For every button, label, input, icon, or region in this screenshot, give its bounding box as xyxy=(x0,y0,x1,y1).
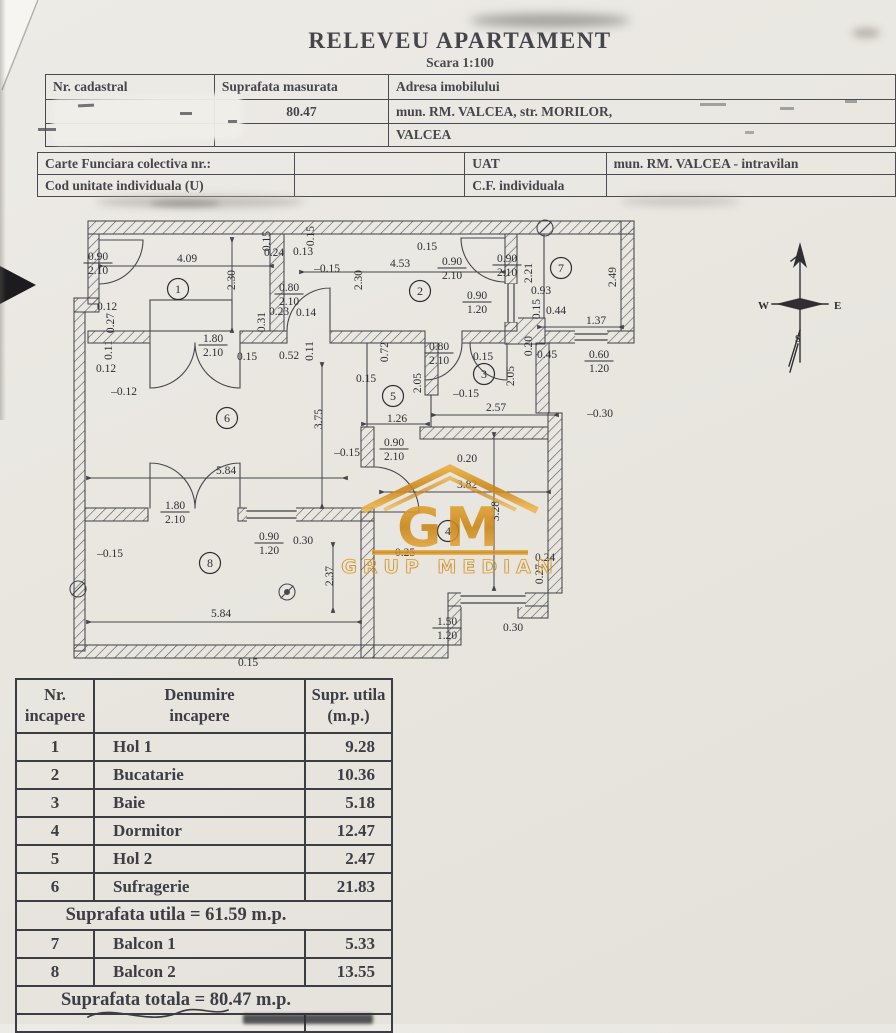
room-number: 3 xyxy=(474,364,495,385)
dimension-label: 2.21 xyxy=(523,263,535,283)
table-row: 80.47 mun. RM. VALCEA, str. MORILOR, xyxy=(46,100,896,124)
dimension-label: 2.05 xyxy=(505,366,517,386)
svg-text:0.12: 0.12 xyxy=(97,301,117,313)
dimension-label: 0.13 xyxy=(293,246,313,258)
adresa-value-line2: VALCEA xyxy=(388,124,895,147)
svg-text:–0.15: –0.15 xyxy=(333,447,360,459)
svg-text:0.15: 0.15 xyxy=(356,373,376,385)
table-row: Nr. cadastral Suprafata masurata Adresa … xyxy=(46,75,896,100)
dimension-label: 0.15 xyxy=(417,241,437,253)
dimension-label: –0.15 xyxy=(313,263,340,275)
svg-text:1: 1 xyxy=(175,282,181,296)
cf-individuala-value xyxy=(606,175,895,197)
drain-symbol xyxy=(279,584,295,600)
svg-text:0.90: 0.90 xyxy=(259,531,279,543)
carte-funciara-label: Carte Funciara colectiva nr.: xyxy=(38,153,295,175)
cell-room-area: 9.28 xyxy=(305,733,392,761)
cutoff-row xyxy=(16,1014,392,1032)
dimension-label: 0.15 xyxy=(356,373,376,385)
dimension-label: 2.57 xyxy=(486,402,506,414)
svg-text:0.93: 0.93 xyxy=(531,285,551,297)
dimension-label: 0.27 xyxy=(105,313,117,333)
dimension-label: 1.802.10 xyxy=(161,500,189,526)
svg-text:2.10: 2.10 xyxy=(165,514,185,526)
dimension-label: 2.49 xyxy=(607,267,619,287)
compass-west-label: W xyxy=(758,300,769,312)
room-number: 5 xyxy=(383,386,404,407)
dimension-label: 0.902.10 xyxy=(438,256,466,282)
svg-text:0.15: 0.15 xyxy=(417,241,437,253)
suprafata-masurata-value: 80.47 xyxy=(214,100,388,124)
table-row: 6 Sufragerie 21.83 xyxy=(16,873,392,901)
window xyxy=(247,507,296,522)
dimension-label: 5.84 xyxy=(211,608,231,620)
svg-text:2: 2 xyxy=(417,284,423,298)
svg-text:0.11: 0.11 xyxy=(304,341,316,361)
dimension-label: 0.15 xyxy=(531,299,543,319)
header-suprafata: Supr. utila (m.p.) xyxy=(305,679,392,733)
svg-text:2.10: 2.10 xyxy=(497,267,517,279)
document-scale: Scara 1:100 xyxy=(24,55,896,71)
cell-room-area: 12.47 xyxy=(305,817,392,845)
room-number: 6 xyxy=(217,408,238,429)
svg-text:1.37: 1.37 xyxy=(586,315,606,327)
svg-text:1.20: 1.20 xyxy=(467,304,487,316)
svg-text:2.30: 2.30 xyxy=(226,270,238,290)
table-row: VALCEA xyxy=(46,124,896,147)
uat-value: mun. RM. VALCEA - intravilan xyxy=(606,153,895,175)
dimension-label: 0.20 xyxy=(523,336,535,356)
svg-text:0.90: 0.90 xyxy=(467,290,487,302)
watermark-initials: GM xyxy=(397,496,503,559)
dimension-label: –0.12 xyxy=(110,386,137,398)
dimension-label: 0.93 xyxy=(531,285,551,297)
dimension-label: 0.24 xyxy=(264,247,284,259)
svg-text:2.30: 2.30 xyxy=(353,270,365,290)
svg-text:0.24: 0.24 xyxy=(264,247,284,259)
svg-text:–0.12: –0.12 xyxy=(110,386,137,398)
svg-text:–0.15: –0.15 xyxy=(313,263,340,275)
svg-text:0.14: 0.14 xyxy=(296,307,316,319)
svg-text:0.45: 0.45 xyxy=(537,349,557,361)
dimension-label: 0.44 xyxy=(546,305,566,317)
dimension-label: 0.31 xyxy=(256,312,268,332)
cell-room-area: 21.83 xyxy=(305,873,392,901)
dimension-label: 0.30 xyxy=(503,622,523,634)
dimension-label: 1.802.10 xyxy=(199,333,227,359)
svg-text:2.05: 2.05 xyxy=(412,373,424,393)
svg-text:0.30: 0.30 xyxy=(293,535,313,547)
dimension-label: 0.901.20 xyxy=(463,290,491,316)
svg-text:3.75: 3.75 xyxy=(313,409,325,429)
cell-room-area: 5.33 xyxy=(305,930,392,958)
dimension-label: 0.15 xyxy=(237,351,257,363)
dimension-label: 0.14 xyxy=(296,307,316,319)
nr-cadastral-header: Nr. cadastral xyxy=(46,75,215,100)
dimension-label: –0.15 xyxy=(96,548,123,560)
compass-south-label: S xyxy=(795,334,801,345)
svg-text:2.37: 2.37 xyxy=(324,566,336,586)
cell-room-area: 13.55 xyxy=(305,958,392,986)
dimension-label: 4.09 xyxy=(177,253,197,265)
svg-text:0.90: 0.90 xyxy=(497,253,517,265)
svg-text:0.60: 0.60 xyxy=(589,349,609,361)
svg-text:0.15: 0.15 xyxy=(238,657,258,669)
cell-room-nr: 2 xyxy=(16,761,94,789)
svg-text:2.57: 2.57 xyxy=(486,402,506,414)
svg-text:0.44: 0.44 xyxy=(546,305,566,317)
cod-unitate-value xyxy=(294,175,464,197)
svg-text:2.49: 2.49 xyxy=(607,267,619,287)
compass-north-arrow: W E S xyxy=(758,242,841,372)
dimension-label: 1.37 xyxy=(586,315,606,327)
cod-unitate-label: Cod unitate individuala (U) xyxy=(38,175,295,197)
dimension-label: 2.37 xyxy=(324,566,336,586)
carte-funciara-value xyxy=(294,153,464,175)
header-nr-incapere: Nr. incapere xyxy=(16,679,94,733)
svg-text:–0.30: –0.30 xyxy=(586,408,613,420)
dimension-label: 0.15 xyxy=(305,226,317,246)
svg-text:5.84: 5.84 xyxy=(211,608,231,620)
cell-room-area: 10.36 xyxy=(305,761,392,789)
svg-text:3: 3 xyxy=(481,367,487,381)
subtotal-row: Suprafata utila = 61.59 m.p. xyxy=(16,901,392,930)
svg-text:0.27: 0.27 xyxy=(105,313,117,333)
svg-text:0.90: 0.90 xyxy=(384,437,404,449)
svg-text:0.72: 0.72 xyxy=(379,342,391,362)
watermark-name: GRUP MEDIAN xyxy=(341,556,559,578)
svg-text:–0.15: –0.15 xyxy=(452,388,479,400)
svg-text:0.23: 0.23 xyxy=(269,306,289,318)
svg-text:1.20: 1.20 xyxy=(259,545,279,557)
svg-text:0.20: 0.20 xyxy=(457,453,477,465)
dimension-label: 3.75 xyxy=(313,409,325,429)
cell-room-nr: 1 xyxy=(16,733,94,761)
cell-room-name: Hol 2 xyxy=(94,845,305,873)
room-number: 2 xyxy=(410,281,431,302)
cell-room-name: Dormitor xyxy=(94,817,305,845)
svg-text:0.15: 0.15 xyxy=(531,299,543,319)
cell-room-nr: 8 xyxy=(16,958,94,986)
door-arc xyxy=(150,343,195,388)
table-header-row: Nr. incapere Denumire incapere Supr. uti… xyxy=(16,679,392,733)
svg-text:0.20: 0.20 xyxy=(523,336,535,356)
cf-individuala-label: C.F. individuala xyxy=(465,175,606,197)
dimension-label: 0.15 xyxy=(473,351,493,363)
table-row: 5 Hol 2 2.47 xyxy=(16,845,392,873)
uat-label: UAT xyxy=(465,153,606,175)
svg-text:2.21: 2.21 xyxy=(523,263,535,283)
left-edge-arrow-marker xyxy=(0,266,36,304)
dimension-label: 4.53 xyxy=(390,258,410,270)
cell-room-nr: 6 xyxy=(16,873,94,901)
table-row: 2 Bucatarie 10.36 xyxy=(16,761,392,789)
dimension-label: –0.30 xyxy=(586,408,613,420)
svg-text:0.30: 0.30 xyxy=(503,622,523,634)
dimension-label: 0.45 xyxy=(537,349,557,361)
cell-room-nr: 7 xyxy=(16,930,94,958)
rooms-area-table: Nr. incapere Denumire incapere Supr. uti… xyxy=(15,678,393,1033)
dimension-label: 0.902.10 xyxy=(380,437,408,463)
dimension-label: 2.05 xyxy=(412,373,424,393)
svg-text:1.50: 1.50 xyxy=(437,616,457,628)
suprafata-totala: Suprafata totala = 80.47 m.p. xyxy=(16,986,392,1014)
dimension-label: 1.26 xyxy=(387,413,407,425)
nr-cadastral-value xyxy=(46,100,215,124)
dimension-label: 0.901.20 xyxy=(255,531,283,557)
svg-text:0.15: 0.15 xyxy=(473,351,493,363)
dimension-label: 0.15 xyxy=(238,657,258,669)
svg-text:5: 5 xyxy=(390,389,396,403)
table-row: 3 Baie 5.18 xyxy=(16,789,392,817)
svg-text:6: 6 xyxy=(224,411,230,425)
dimension-label: 0.30 xyxy=(293,535,313,547)
svg-text:0.15: 0.15 xyxy=(305,226,317,246)
window xyxy=(504,284,518,322)
cell-room-area: 2.47 xyxy=(305,845,392,873)
svg-text:2.10: 2.10 xyxy=(384,451,404,463)
cell-room-name: Sufragerie xyxy=(94,873,305,901)
dimension-label: –0.15 xyxy=(333,447,360,459)
svg-text:5.84: 5.84 xyxy=(216,465,236,477)
table-row: Cod unitate individuala (U) C.F. individ… xyxy=(38,175,896,197)
svg-text:2.05: 2.05 xyxy=(505,366,517,386)
window xyxy=(575,330,607,344)
cell-room-nr: 5 xyxy=(16,845,94,873)
dimension-label: 0.12 xyxy=(96,363,116,375)
svg-text:0.12: 0.12 xyxy=(96,363,116,375)
room-number: 7 xyxy=(551,258,572,279)
dimension-label: 0.11 xyxy=(103,340,115,360)
header-denumire: Denumire incapere xyxy=(94,679,305,733)
dimension-label: 0.72 xyxy=(379,342,391,362)
svg-text:0.90: 0.90 xyxy=(442,256,462,268)
svg-text:1.20: 1.20 xyxy=(437,630,457,642)
closet-niche xyxy=(150,300,232,331)
svg-text:0.13: 0.13 xyxy=(293,246,313,258)
svg-text:0.80: 0.80 xyxy=(429,341,449,353)
cell-room-nr: 4 xyxy=(16,817,94,845)
adresa-value-line1: mun. RM. VALCEA, str. MORILOR, xyxy=(388,100,895,124)
svg-text:7: 7 xyxy=(558,261,564,275)
table-row: 1 Hol 1 9.28 xyxy=(16,733,392,761)
scanned-document-page: { "document": { "title": "RELEVEU APARTA… xyxy=(0,0,896,1024)
cell-room-nr: 3 xyxy=(16,789,94,817)
svg-text:4.53: 4.53 xyxy=(390,258,410,270)
compass-east-label: E xyxy=(834,300,841,312)
svg-text:2.10: 2.10 xyxy=(88,265,108,277)
dimension-label: 0.601.20 xyxy=(585,349,613,375)
svg-text:0.15: 0.15 xyxy=(237,351,257,363)
cadastral-table: Nr. cadastral Suprafata masurata Adresa … xyxy=(45,74,896,147)
table-row: Carte Funciara colectiva nr.: UAT mun. R… xyxy=(38,153,896,175)
svg-text:0.52: 0.52 xyxy=(279,350,299,362)
carte-funciara-table: Carte Funciara colectiva nr.: UAT mun. R… xyxy=(37,152,896,197)
suprafata-masurata-header: Suprafata masurata xyxy=(214,75,388,100)
svg-text:2.10: 2.10 xyxy=(429,355,449,367)
cell-room-name: Hol 1 xyxy=(94,733,305,761)
dimension-label: –0.15 xyxy=(452,388,479,400)
document-title: RELEVEU APARTAMENT xyxy=(24,28,896,54)
table-row: 8 Balcon 2 13.55 xyxy=(16,958,392,986)
svg-text:1.80: 1.80 xyxy=(165,500,185,512)
dimension-label: 0.52 xyxy=(279,350,299,362)
svg-text:1.80: 1.80 xyxy=(203,333,223,345)
svg-text:–0.15: –0.15 xyxy=(96,548,123,560)
svg-text:0.11: 0.11 xyxy=(103,340,115,360)
adresa-header: Adresa imobilului xyxy=(388,75,895,100)
svg-text:0.90: 0.90 xyxy=(88,251,108,263)
svg-text:2.10: 2.10 xyxy=(203,347,223,359)
svg-text:8: 8 xyxy=(207,556,213,570)
svg-text:1.26: 1.26 xyxy=(387,413,407,425)
dimension-label: 0.11 xyxy=(304,341,316,361)
svg-text:2.10: 2.10 xyxy=(442,270,462,282)
dimension-label: 0.12 xyxy=(97,301,117,313)
suprafata-utila-total: Suprafata utila = 61.59 m.p. xyxy=(16,901,392,930)
dimension-label: 5.84 xyxy=(216,465,236,477)
cell-room-name: Balcon 2 xyxy=(94,958,305,986)
total-row: Suprafata totala = 80.47 m.p. xyxy=(16,986,392,1014)
dimension-label: 0.23 xyxy=(269,306,289,318)
room-number: 1 xyxy=(168,279,189,300)
cell-room-name: Balcon 1 xyxy=(94,930,305,958)
svg-text:1.20: 1.20 xyxy=(589,363,609,375)
dimension-label: 2.30 xyxy=(353,270,365,290)
room-number: 8 xyxy=(200,553,221,574)
svg-text:4.09: 4.09 xyxy=(177,253,197,265)
svg-text:0.80: 0.80 xyxy=(279,282,299,294)
cell-room-area: 5.18 xyxy=(305,789,392,817)
svg-text:0.31: 0.31 xyxy=(256,312,268,332)
table-row: 7 Balcon 1 5.33 xyxy=(16,930,392,958)
window xyxy=(461,592,525,607)
dimension-label: 0.20 xyxy=(457,453,477,465)
cell-room-name: Baie xyxy=(94,789,305,817)
table-row: 4 Dormitor 12.47 xyxy=(16,817,392,845)
cell-room-name: Bucatarie xyxy=(94,761,305,789)
dimension-label: 2.30 xyxy=(226,270,238,290)
